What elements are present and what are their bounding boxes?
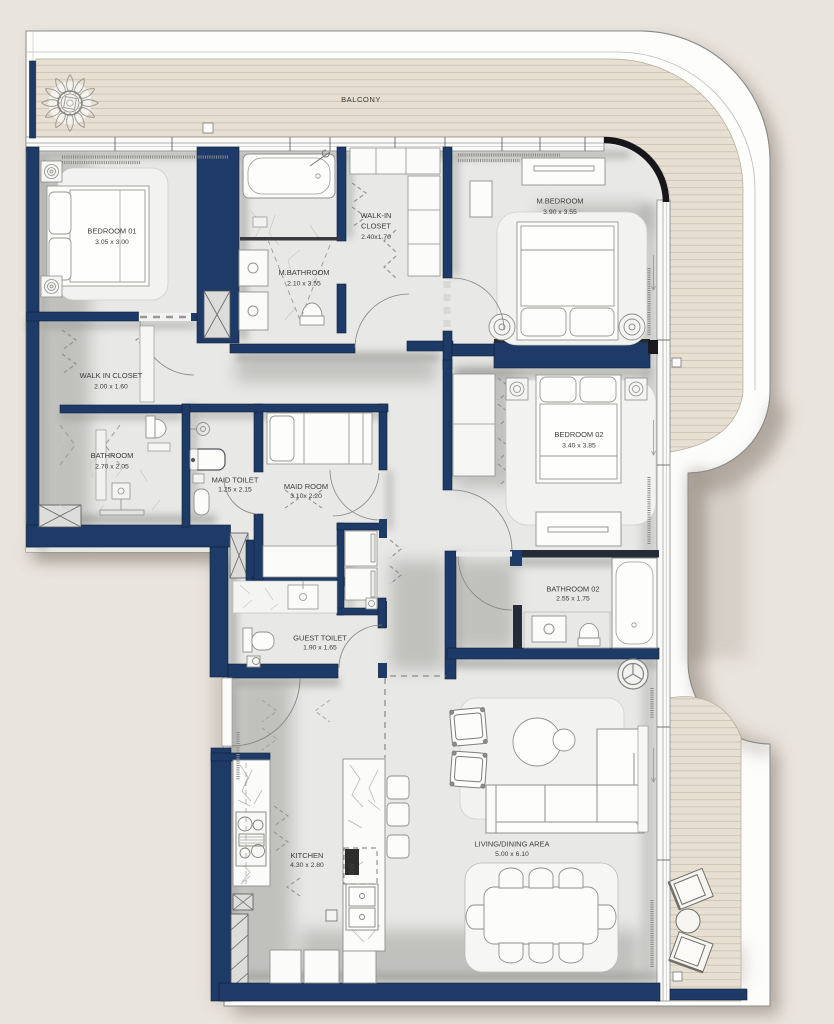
svg-text:BEDROOM 02: BEDROOM 02 (554, 430, 603, 439)
svg-text:2.10 x 3.55: 2.10 x 3.55 (287, 281, 321, 288)
svg-text:LIVING/DINING AREA: LIVING/DINING AREA (474, 840, 549, 849)
svg-text:3.40 x 3.85: 3.40 x 3.85 (562, 443, 596, 450)
svg-text:3.05 x 3.00: 3.05 x 3.00 (95, 239, 129, 246)
svg-text:DW: DW (349, 863, 356, 875)
svg-text:BEDROOM 01: BEDROOM 01 (87, 227, 136, 236)
svg-text:4.30 x 2.80: 4.30 x 2.80 (290, 862, 324, 869)
svg-text:1.25 x 2.15: 1.25 x 2.15 (218, 487, 252, 494)
svg-text:MAID TOILET: MAID TOILET (212, 476, 259, 485)
svg-text:KITCHEN: KITCHEN (291, 851, 324, 860)
svg-text:BATHROOM: BATHROOM (91, 451, 134, 460)
svg-text:2.40x1.70: 2.40x1.70 (361, 234, 391, 241)
svg-text:CLOSET: CLOSET (361, 222, 391, 231)
svg-text:GUEST TOILET: GUEST TOILET (293, 634, 347, 643)
svg-text:5.00 x 6.10: 5.00 x 6.10 (495, 851, 529, 858)
svg-text:M.BATHROOM: M.BATHROOM (278, 268, 329, 277)
svg-text:1.90 x 1.65: 1.90 x 1.65 (303, 645, 337, 652)
svg-text:MAID ROOM: MAID ROOM (284, 482, 328, 491)
svg-text:WALK IN CLOSET: WALK IN CLOSET (80, 371, 143, 380)
svg-text:BALCONY: BALCONY (341, 95, 381, 104)
svg-text:2.00 x 1.60: 2.00 x 1.60 (94, 384, 128, 391)
svg-text:WALK-IN: WALK-IN (361, 211, 392, 220)
svg-text:3.10x 2.20: 3.10x 2.20 (290, 493, 322, 500)
svg-text:M.BEDROOM: M.BEDROOM (536, 197, 583, 206)
svg-text:BATHROOM 02: BATHROOM 02 (546, 585, 599, 594)
svg-text:2.55 x 1.75: 2.55 x 1.75 (556, 596, 590, 603)
svg-text:2.70 x 2.05: 2.70 x 2.05 (95, 464, 129, 471)
svg-text:3.90 x 3.55: 3.90 x 3.55 (543, 209, 577, 216)
